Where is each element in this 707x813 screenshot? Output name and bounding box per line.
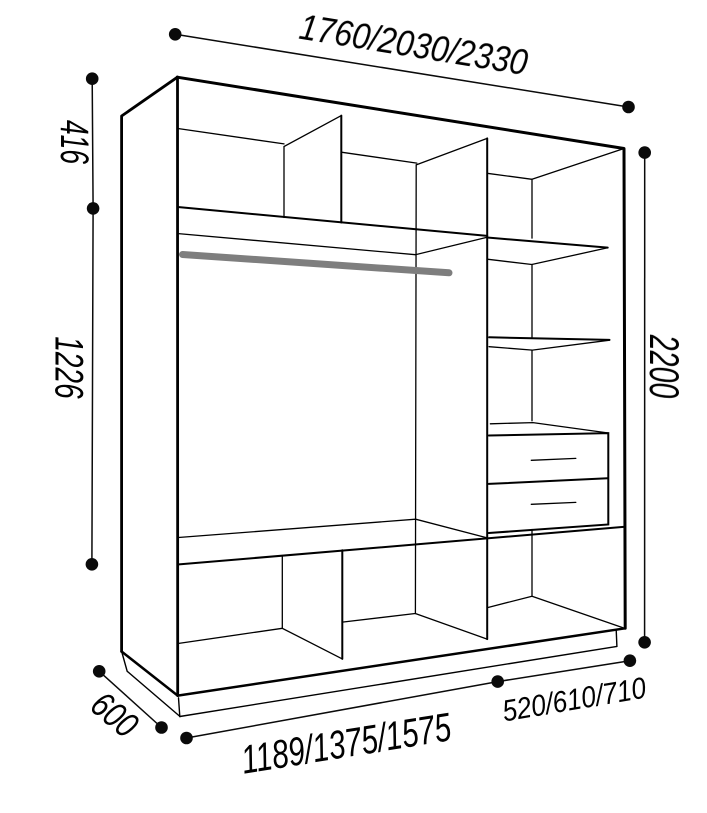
svg-text:1226: 1226: [46, 336, 90, 399]
svg-text:416: 416: [52, 120, 97, 164]
svg-text:2200: 2200: [641, 334, 689, 398]
